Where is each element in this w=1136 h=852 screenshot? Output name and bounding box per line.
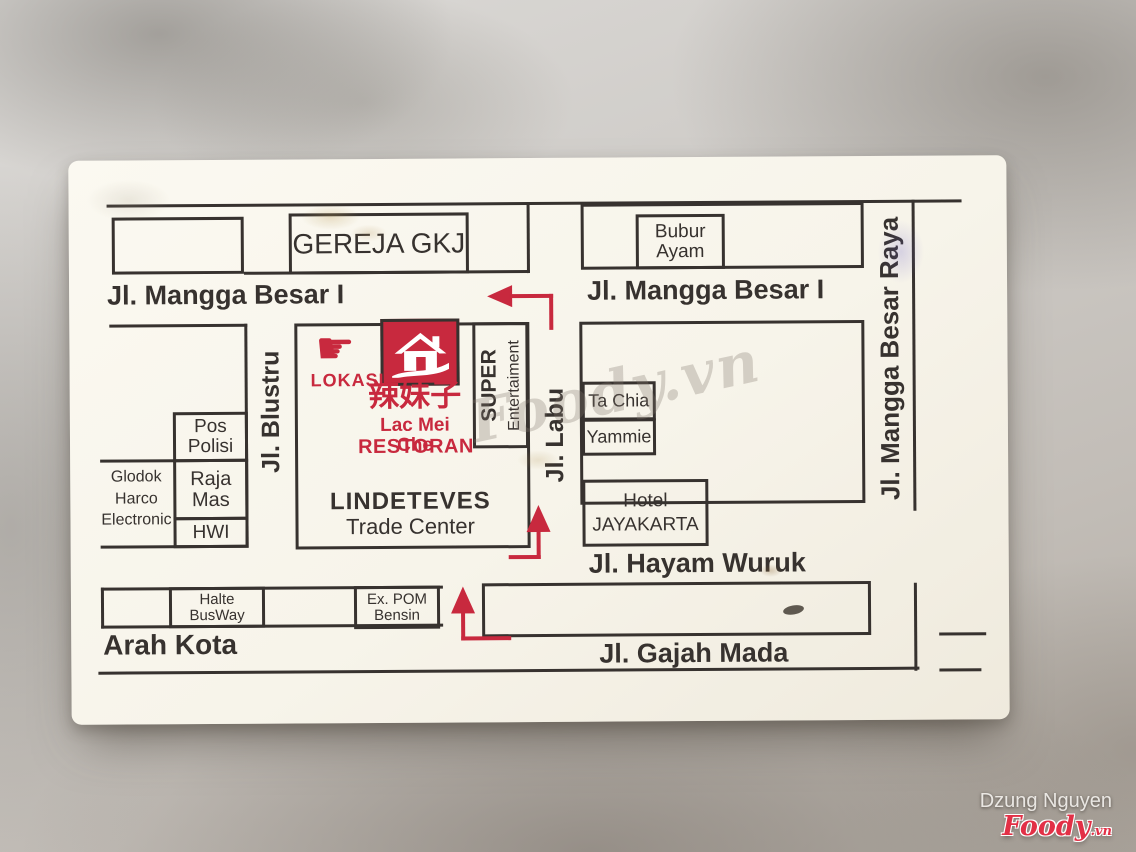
trade-center-label: Trade Center [322, 515, 498, 539]
foody-logo-suffix: .vn [1090, 824, 1112, 839]
building-bubur-ayam: Bubur Ayam [636, 214, 725, 270]
restaurant-logo-box [380, 318, 459, 385]
foody-logo-text: Foody [1002, 811, 1090, 842]
route-arrow-north-hayam-icon [508, 505, 564, 563]
building-gereja-gkj: GEREJA GKJ [289, 212, 469, 274]
street-label-blustru: Jl. Blustru [248, 342, 293, 482]
route-arrow-north-gajah-icon [451, 586, 513, 644]
building-ex-pom-bensin: Ex. POM Bensin [354, 586, 440, 630]
street-label-hayam-wuruk: Jl. Hayam Wuruk [589, 548, 806, 577]
building-halte-busway: Halte BusWay [169, 587, 265, 629]
building-bubur-label: Bubur Ayam [655, 222, 706, 262]
route-arrow-west-icon [487, 285, 559, 333]
road-line-raya-east-lower [914, 583, 918, 671]
lindeteves-label: LINDETEVES [320, 489, 500, 515]
building-raja-mas-label: Raja Mas [190, 469, 231, 511]
building-hwi-label: HWI [193, 523, 230, 543]
foody-logo: Foody.vn [980, 813, 1112, 840]
road-line-southeast-upper [939, 632, 986, 635]
road-line-leftblock-top [109, 324, 247, 328]
road-line-glodok-top [100, 459, 176, 462]
building-halte-label: Halte BusWay [189, 592, 244, 624]
building-hotel-jayakarta: Hotel JAYAKARTA [582, 479, 708, 547]
street-label-blustru-text: Jl. Blustru [256, 350, 286, 472]
building-pos-polisi: Pos Polisi [173, 412, 248, 462]
street-label-mangga-besar-1-left: Jl. Mangga Besar I [107, 280, 344, 310]
pointing-hand-icon: ☛ [315, 327, 355, 371]
block-gajah-mada-median [482, 581, 871, 637]
street-label-mangga-besar-1-right: Jl. Mangga Besar I [587, 275, 824, 305]
road-line-south [98, 667, 919, 675]
ink-smudge [869, 208, 934, 296]
road-line-busway-cap [101, 588, 104, 629]
building-pos-polisi-label: Pos Polisi [188, 417, 234, 457]
building-hwi: HWI [173, 517, 248, 548]
street-label-gajah-mada: Jl. Gajah Mada [599, 638, 788, 667]
stain-mark [782, 604, 804, 617]
block-top-left [112, 217, 244, 275]
house-logo-icon [388, 327, 452, 377]
photo-credit-author: Dzung Nguyen [980, 790, 1112, 813]
building-gereja-label: GEREJA GKJ [292, 228, 465, 258]
building-raja-mas: Raja Mas [173, 459, 248, 520]
street-label-arah-kota: Arah Kota [103, 630, 237, 660]
business-card-map: GEREJA GKJ Bubur Ayam Pos Polisi Raja Ma… [68, 155, 1009, 725]
restaurant-chinese-name: 辣妹子 [363, 379, 467, 412]
photo-credit: Dzung Nguyen Foody.vn [980, 790, 1112, 840]
road-line-southeast-lower [939, 668, 981, 671]
building-hotel-label: Hotel JAYAKARTA [592, 489, 699, 537]
building-glodok-label: Glodok Harco Electronic [98, 466, 174, 531]
restaurant-type: RESTORAN [358, 436, 470, 457]
building-pom-label: Ex. POM Bensin [367, 592, 427, 624]
road-line-gereja-east [527, 202, 530, 273]
